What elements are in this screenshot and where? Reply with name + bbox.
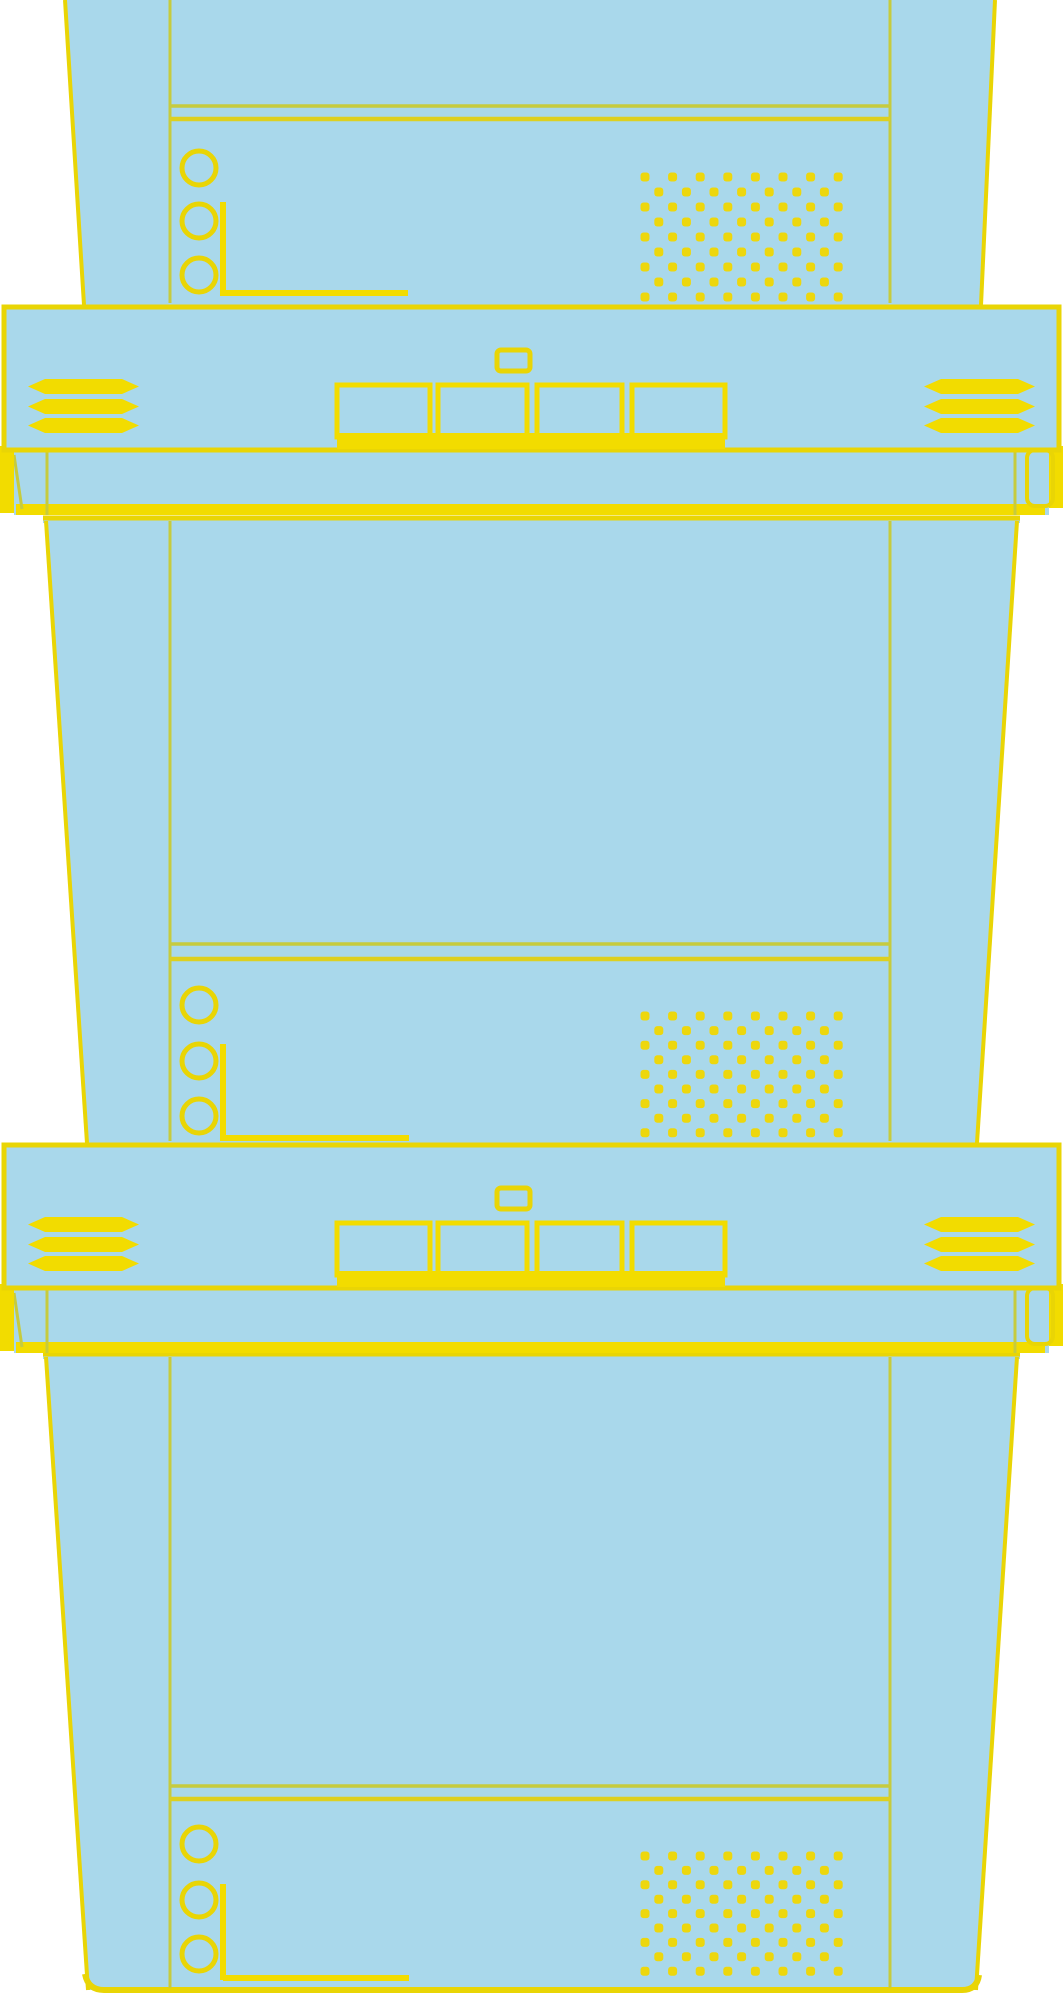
vent-slot bbox=[924, 1237, 1035, 1252]
vent-slot bbox=[924, 1217, 1035, 1232]
container-top bbox=[65, 0, 995, 305]
lid-skirt bbox=[0, 446, 1063, 515]
lid-face bbox=[4, 307, 1059, 450]
vent-slot bbox=[28, 1237, 139, 1252]
lid-left-foot bbox=[0, 446, 14, 513]
stacked-containers-illustration bbox=[0, 0, 1063, 1995]
vent-slot bbox=[924, 418, 1035, 433]
lid-left-foot bbox=[0, 1284, 14, 1351]
vent-slots-right bbox=[924, 1217, 1035, 1271]
vent-slot bbox=[924, 379, 1035, 394]
vent-slots-left bbox=[28, 1217, 139, 1271]
container-bottom bbox=[43, 1352, 1020, 1990]
lid-skirt bbox=[0, 1284, 1063, 1353]
lid-upper bbox=[0, 307, 1063, 515]
vent-slot bbox=[924, 399, 1035, 414]
vent-slot bbox=[28, 1256, 139, 1271]
vent-slot bbox=[28, 379, 139, 394]
containers-drawing bbox=[0, 0, 1063, 1995]
vent-slot bbox=[924, 1256, 1035, 1271]
lid-lower bbox=[0, 1145, 1063, 1353]
vent-slots-left bbox=[28, 379, 139, 433]
lid-face bbox=[4, 1145, 1059, 1288]
vent-slot bbox=[28, 399, 139, 414]
vent-slot bbox=[28, 1217, 139, 1232]
container-middle bbox=[43, 516, 1020, 1143]
vent-slot bbox=[28, 418, 139, 433]
vent-slots-right bbox=[924, 379, 1035, 433]
